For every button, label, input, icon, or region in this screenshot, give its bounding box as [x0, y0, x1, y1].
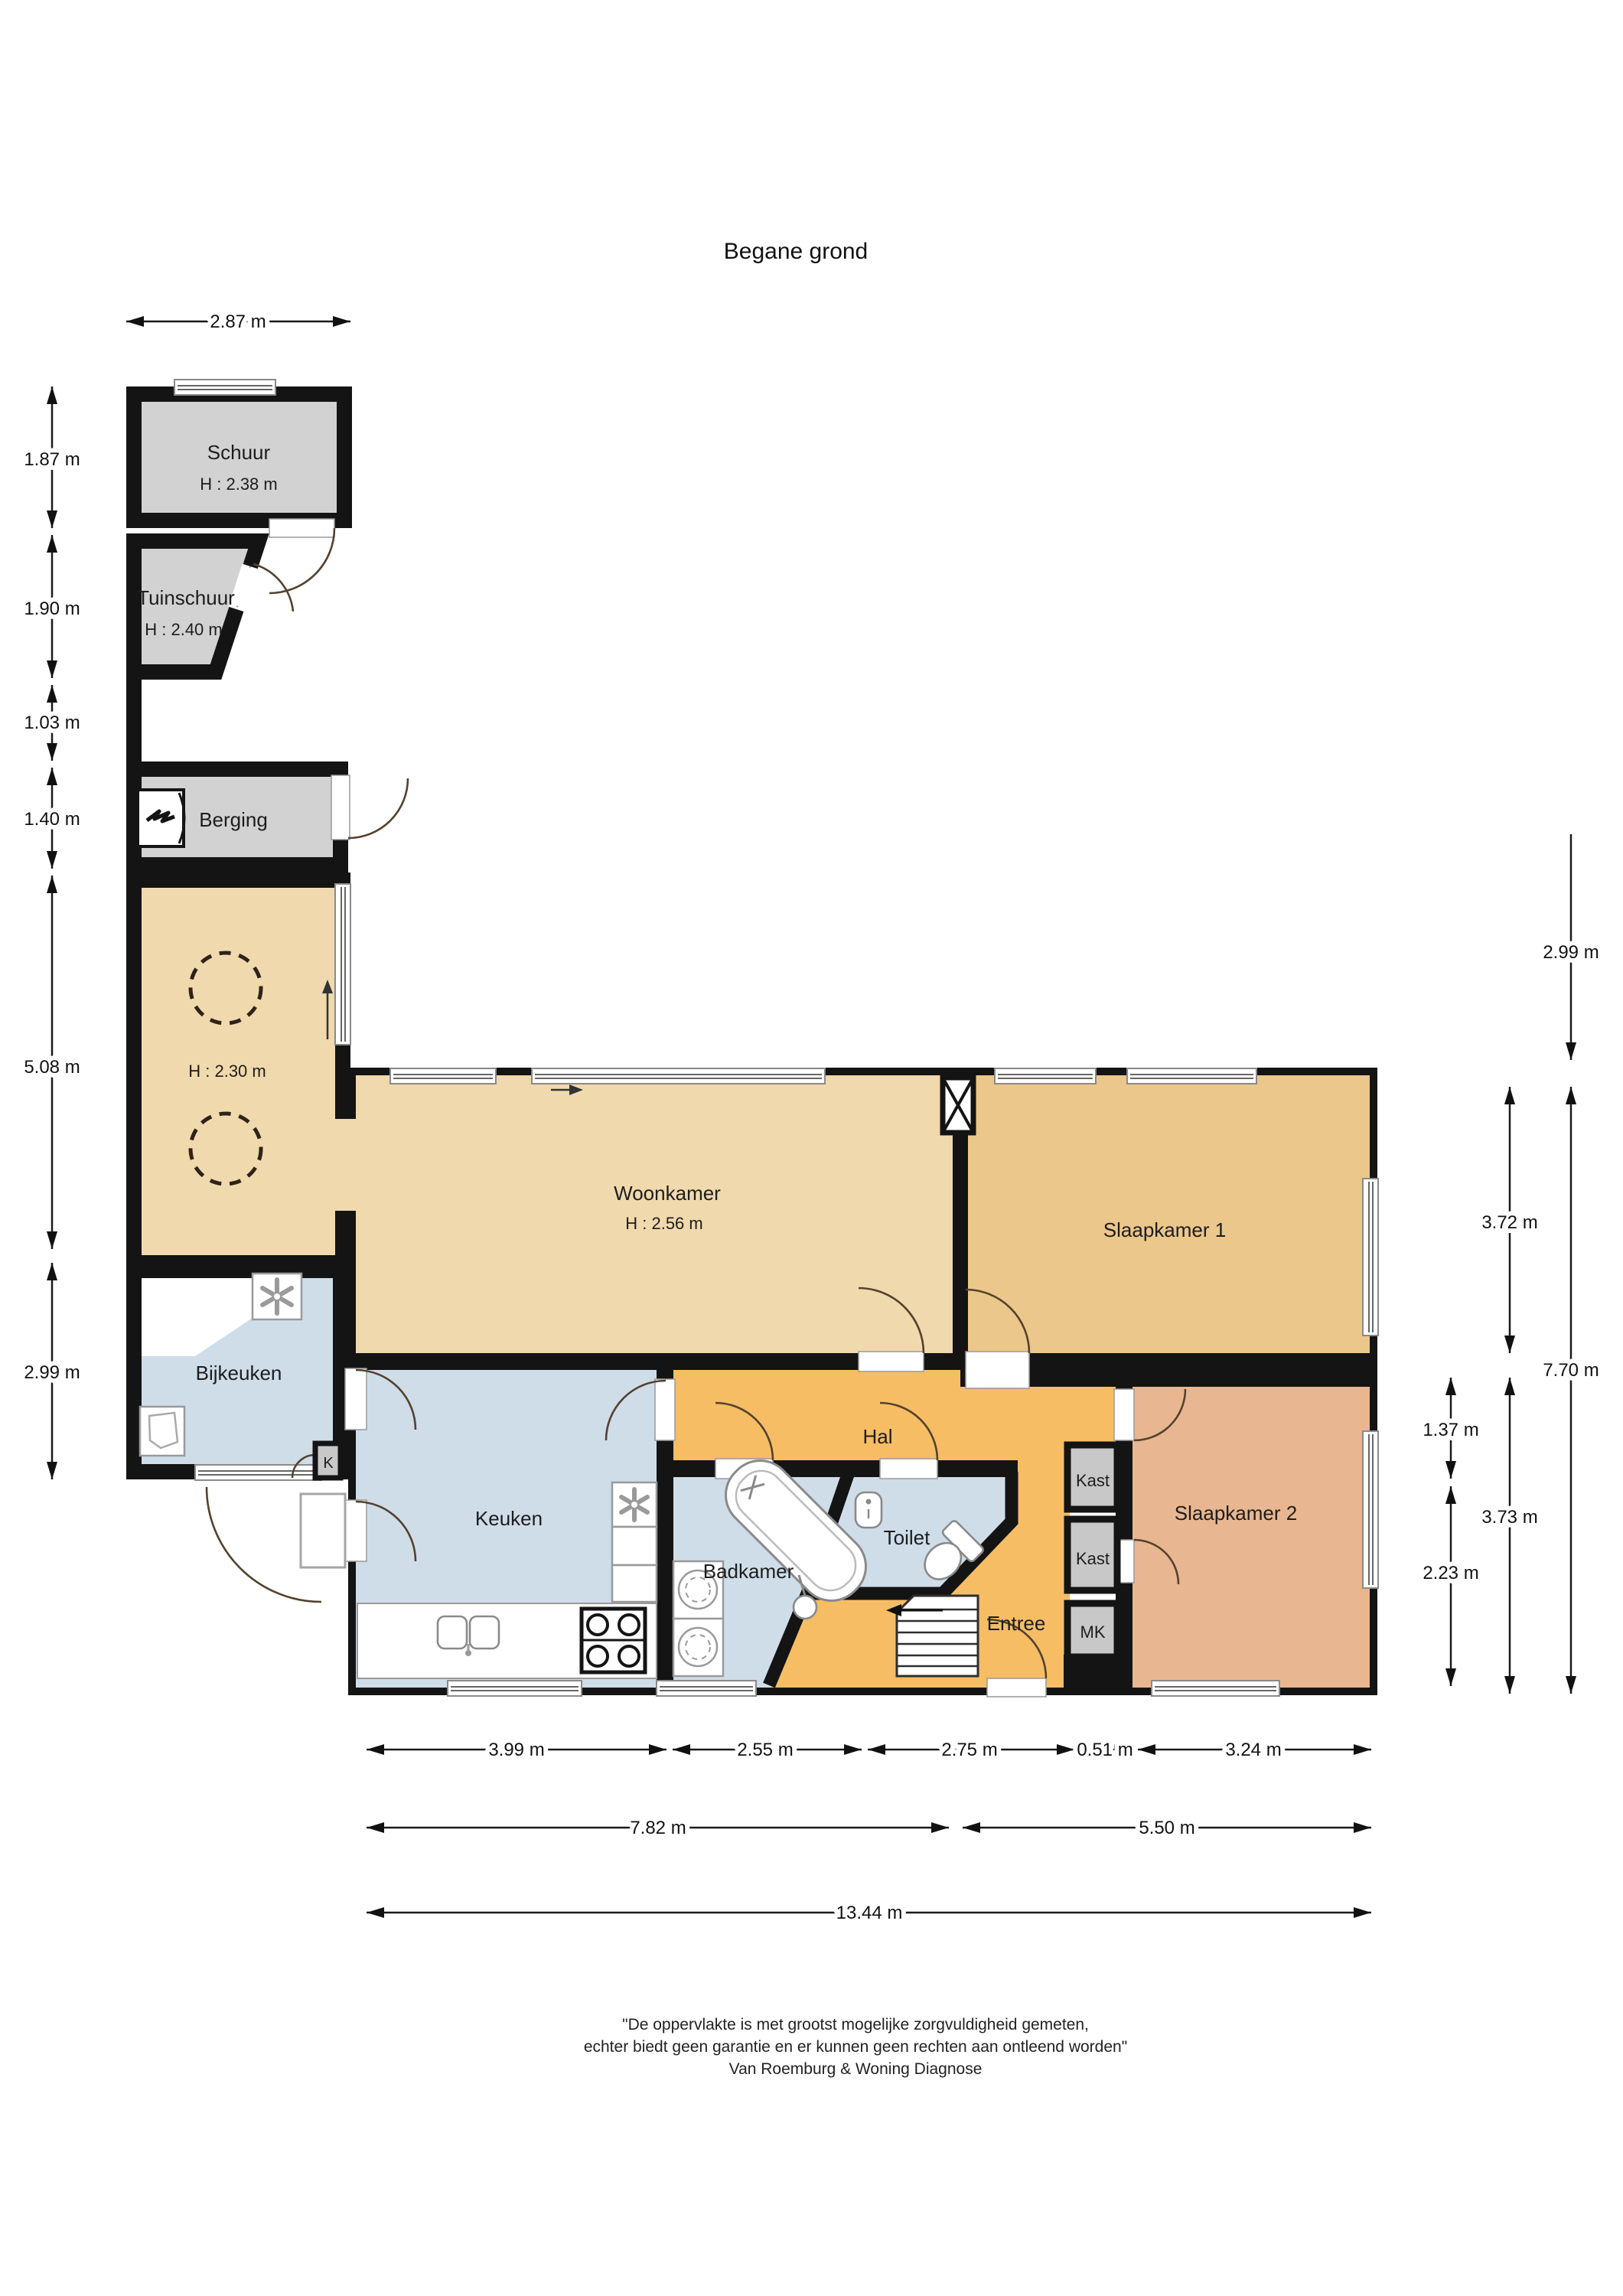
garage-house-opening	[334, 1119, 373, 1211]
stove-icon	[582, 1609, 645, 1672]
dim-left-187: 1.87 m	[24, 386, 80, 528]
label-kast1: Kast	[1076, 1471, 1110, 1490]
svg-text:1.37 m: 1.37 m	[1423, 1420, 1478, 1440]
door-gap-berging	[331, 775, 350, 840]
label-slaapkamer2: Slaapkamer 2	[1175, 1502, 1297, 1525]
dim-right-299: 2.99 m	[1543, 834, 1599, 1060]
svg-text:3.73 m: 3.73 m	[1481, 1507, 1537, 1528]
label-bijkeuken: Bijkeuken	[196, 1362, 282, 1384]
dim-right-137: 1.37 m	[1423, 1378, 1478, 1479]
footer-line-3: Van Roemburg & Woning Diagnose	[729, 2060, 983, 2078]
door-gap-front-door	[987, 1678, 1046, 1697]
svg-text:3.24 m: 3.24 m	[1225, 1740, 1281, 1760]
dryer-icon	[673, 1619, 723, 1676]
left-boundary-wall	[126, 672, 142, 771]
svg-text:1.40 m: 1.40 m	[24, 809, 80, 830]
svg-text:3.72 m: 3.72 m	[1481, 1212, 1537, 1233]
dim-bottom-1344: 13.44 m	[367, 1903, 1371, 1923]
svg-text:2.87 m: 2.87 m	[210, 311, 266, 332]
dim-bottom-399: 3.99 m	[367, 1740, 666, 1760]
door-gap-toilet	[880, 1459, 937, 1479]
door-arc-tuinschuur	[253, 564, 293, 612]
label-toilet: Toilet	[884, 1526, 930, 1549]
label-garage-height: H : 2.30 m	[188, 1062, 266, 1081]
dim-bottom-550: 5.50 m	[963, 1818, 1371, 1838]
svg-text:5.08 m: 5.08 m	[24, 1057, 80, 1078]
dim-bottom-255: 2.55 m	[673, 1740, 862, 1760]
label-kast2: Kast	[1076, 1549, 1110, 1568]
window-slaapkamer1-north-2	[1127, 1068, 1256, 1084]
door-gap-bijkeuken-keuken	[345, 1368, 367, 1430]
dim-left-299: 2.99 m	[24, 1263, 80, 1479]
door-gap-keuken-hal	[655, 1379, 675, 1440]
window-woonkamer-north-1	[390, 1068, 496, 1084]
svg-text:13.44 m: 13.44 m	[836, 1903, 903, 1923]
door-gap-keuken-outside	[345, 1500, 367, 1561]
svg-text:0.51 m: 0.51 m	[1077, 1740, 1133, 1760]
dim-bottom-324: 3.24 m	[1138, 1740, 1371, 1760]
dim-left-508: 5.08 m	[24, 876, 80, 1249]
svg-text:2.23 m: 2.23 m	[1423, 1563, 1478, 1583]
footer-line-2: echter biedt geen garantie en er kunnen …	[584, 2038, 1127, 2056]
door-gap-slaapkamer1	[966, 1352, 1029, 1388]
staircase	[886, 1596, 978, 1676]
svg-text:1.90 m: 1.90 m	[24, 598, 80, 619]
dim-right-372: 3.72 m	[1481, 1087, 1537, 1353]
door-gap-woonkamer	[859, 1352, 924, 1371]
kitchen-cabinets	[612, 1482, 657, 1602]
svg-text:5.50 m: 5.50 m	[1139, 1818, 1194, 1838]
window-schuur-north	[174, 380, 275, 395]
svg-text:2.55 m: 2.55 m	[737, 1740, 793, 1760]
window-keuken-south-1	[448, 1681, 582, 1696]
label-keuken: Keuken	[475, 1507, 543, 1530]
door-gap-schuur	[269, 519, 334, 537]
floor-plan-svg: Schuur H : 2.38 m Tuinschuur H : 2.40 m …	[0, 0, 1623, 2296]
outside-stoop	[301, 1494, 345, 1567]
label-mk: MK	[1080, 1623, 1106, 1642]
svg-text:3.99 m: 3.99 m	[488, 1740, 544, 1760]
label-slaapkamer1: Slaapkamer 1	[1103, 1218, 1226, 1241]
svg-text:7.82 m: 7.82 m	[630, 1818, 686, 1838]
ventilation-fan-icon-bijkeuken	[253, 1274, 301, 1319]
dim-bottom-782: 7.82 m	[367, 1818, 949, 1838]
door-arc-berging	[348, 778, 408, 838]
shaft-icon	[943, 1078, 973, 1133]
label-k: K	[323, 1455, 334, 1472]
door-gap-slaapkamer2	[1114, 1389, 1134, 1440]
window-slaapkamer2-east	[1363, 1431, 1378, 1588]
footer-line-1: "De oppervlakte is met grootst mogelijke…	[622, 2016, 1089, 2033]
dim-right-373: 3.73 m	[1481, 1378, 1537, 1694]
label-tuinschuur: Tuinschuur	[137, 586, 235, 609]
dim-left-103: 1.03 m	[24, 685, 80, 761]
svg-text:1.87 m: 1.87 m	[24, 449, 80, 470]
label-tuinschuur-height: H : 2.40 m	[145, 620, 222, 639]
room-slaapkamer2	[1117, 1387, 1370, 1688]
window-slaapkamer1-east	[1363, 1179, 1378, 1336]
window-woonkamer-north-2	[532, 1068, 825, 1084]
dim-bottom-275: 2.75 m	[868, 1740, 1074, 1760]
window-slaapkamer2-south	[1152, 1681, 1279, 1696]
dim-left-140: 1.40 m	[24, 768, 80, 869]
dim-bottom-051: 0.51 m	[1077, 1740, 1133, 1760]
label-entree: Entree	[987, 1612, 1046, 1635]
label-hal: Hal	[862, 1425, 892, 1448]
svg-text:2.75 m: 2.75 m	[941, 1740, 997, 1760]
dim-right-770: 7.70 m	[1543, 1087, 1599, 1694]
window-bijkeuken-south	[195, 1465, 321, 1480]
svg-text:2.99 m: 2.99 m	[24, 1362, 80, 1383]
window-keuken-south-2	[657, 1681, 756, 1696]
label-woonkamer-height: H : 2.56 m	[625, 1214, 702, 1233]
label-badkamer: Badkamer	[703, 1560, 794, 1583]
floorplan-page: Schuur H : 2.38 m Tuinschuur H : 2.40 m …	[0, 0, 1623, 2296]
dim-left-190: 1.90 m	[24, 535, 80, 678]
page-title: Begane grond	[724, 239, 869, 264]
laundry-sink-icon	[140, 1407, 184, 1456]
dim-right-223: 2.23 m	[1423, 1486, 1478, 1686]
boiler-icon	[138, 790, 184, 846]
svg-text:1.03 m: 1.03 m	[24, 713, 80, 733]
toilet-basin-icon	[855, 1492, 882, 1528]
label-woonkamer: Woonkamer	[614, 1182, 721, 1205]
svg-text:7.70 m: 7.70 m	[1543, 1360, 1599, 1381]
window-slaapkamer1-north-1	[995, 1068, 1096, 1084]
svg-text:2.99 m: 2.99 m	[1543, 942, 1599, 963]
label-berging: Berging	[199, 808, 268, 831]
label-schuur: Schuur	[207, 441, 271, 464]
label-schuur-height: H : 2.38 m	[200, 475, 277, 494]
window-garage-east	[335, 884, 350, 1045]
dim-top-287: 2.87 m	[126, 311, 350, 332]
